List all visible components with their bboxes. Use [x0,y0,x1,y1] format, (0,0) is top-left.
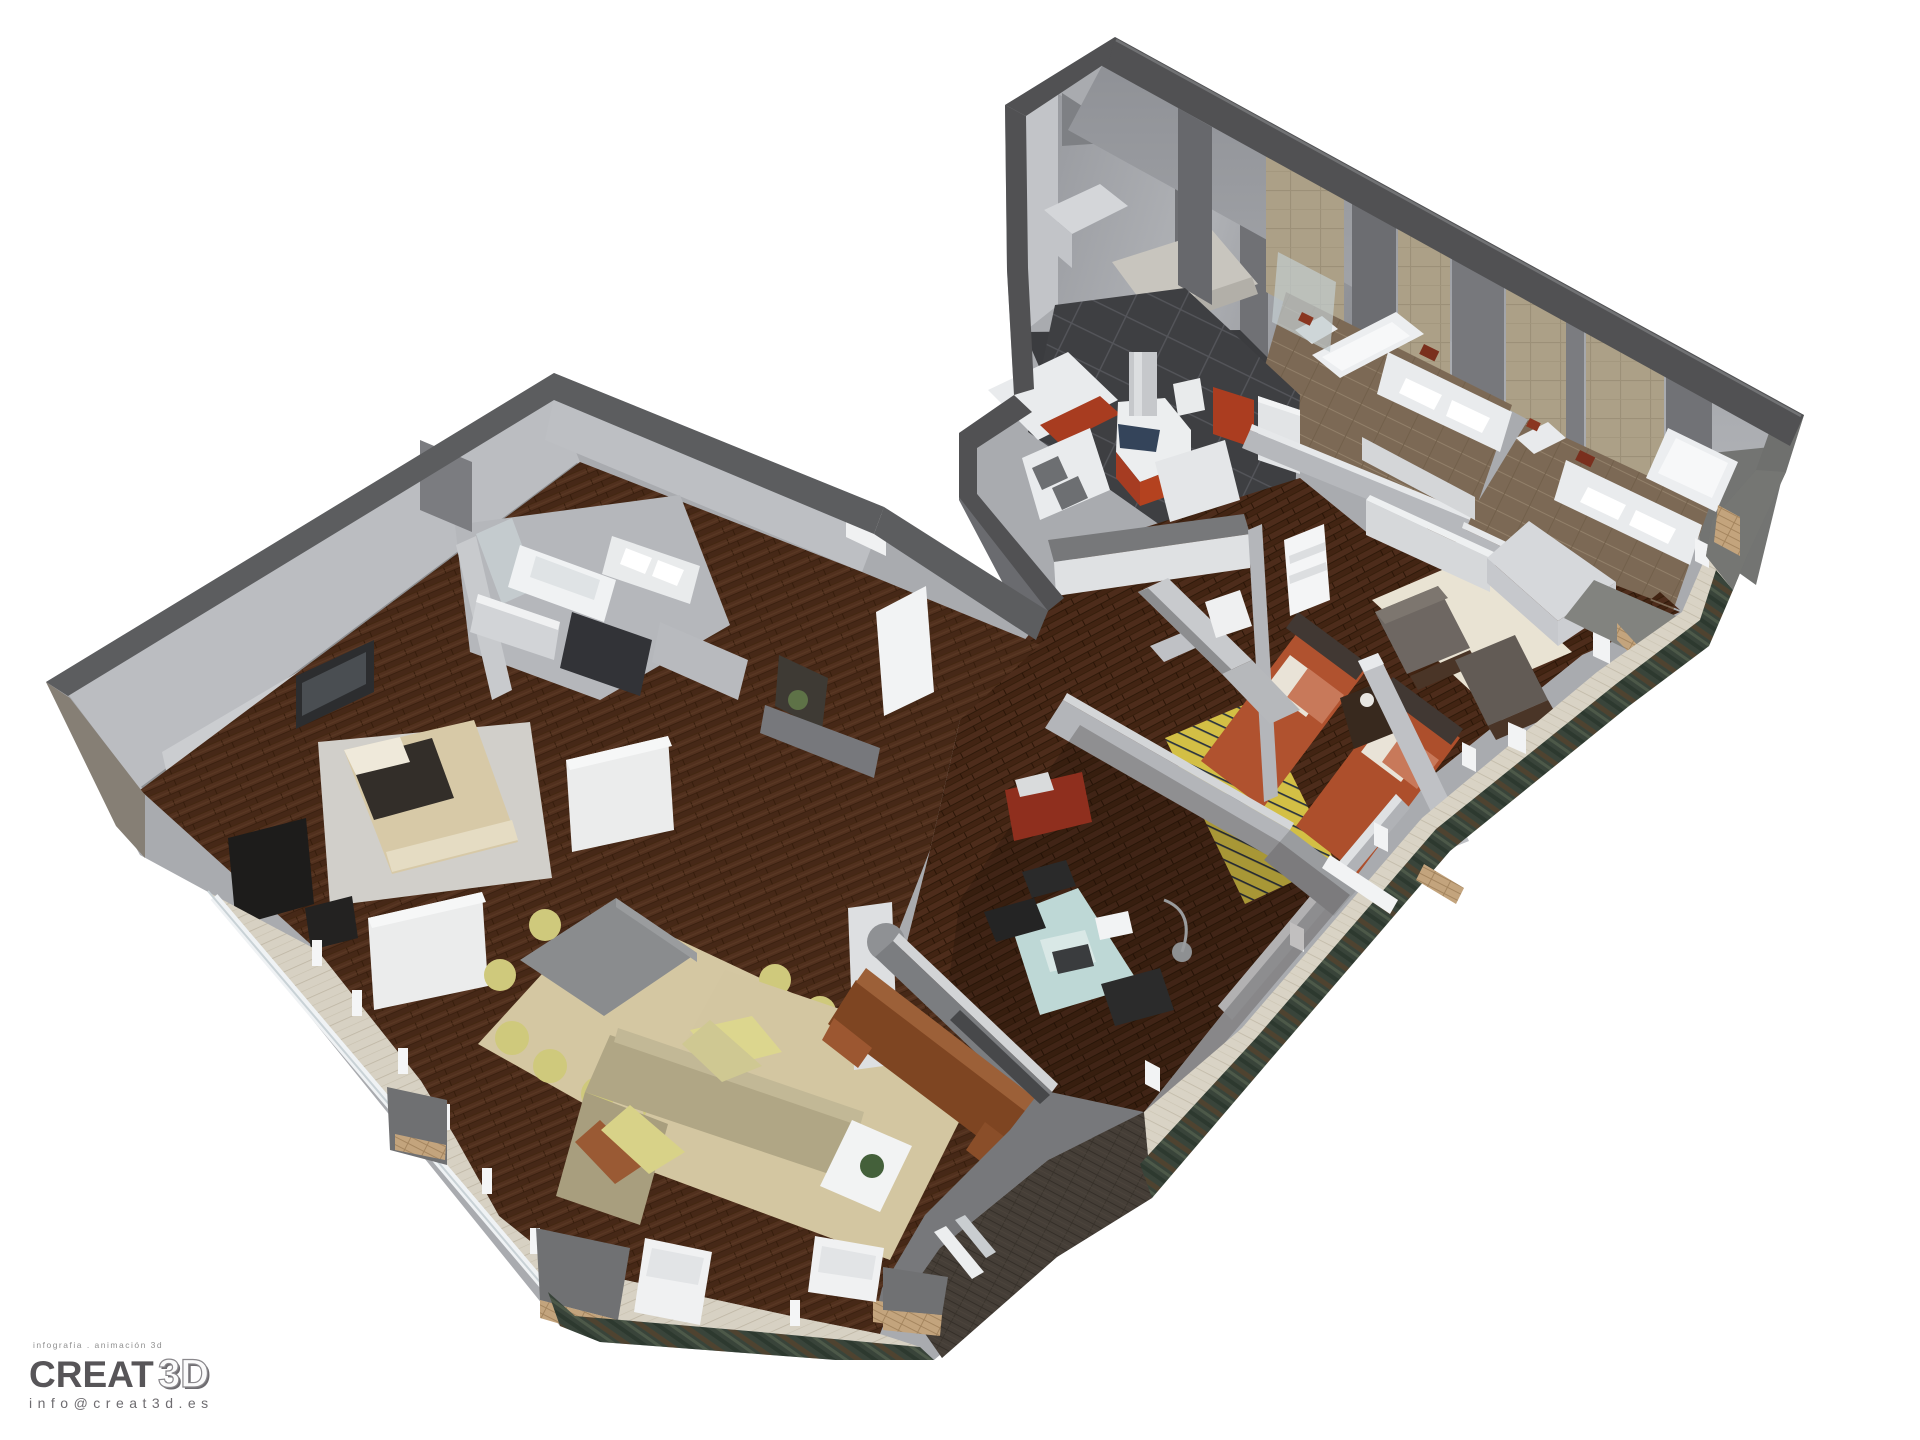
svg-text:info@creat3d.es: info@creat3d.es [29,1395,214,1411]
svg-text:CREAT: CREAT [29,1354,154,1395]
svg-text:infografia . animación 3d: infografia . animación 3d [33,1340,163,1350]
svg-text:3D: 3D [158,1352,209,1396]
